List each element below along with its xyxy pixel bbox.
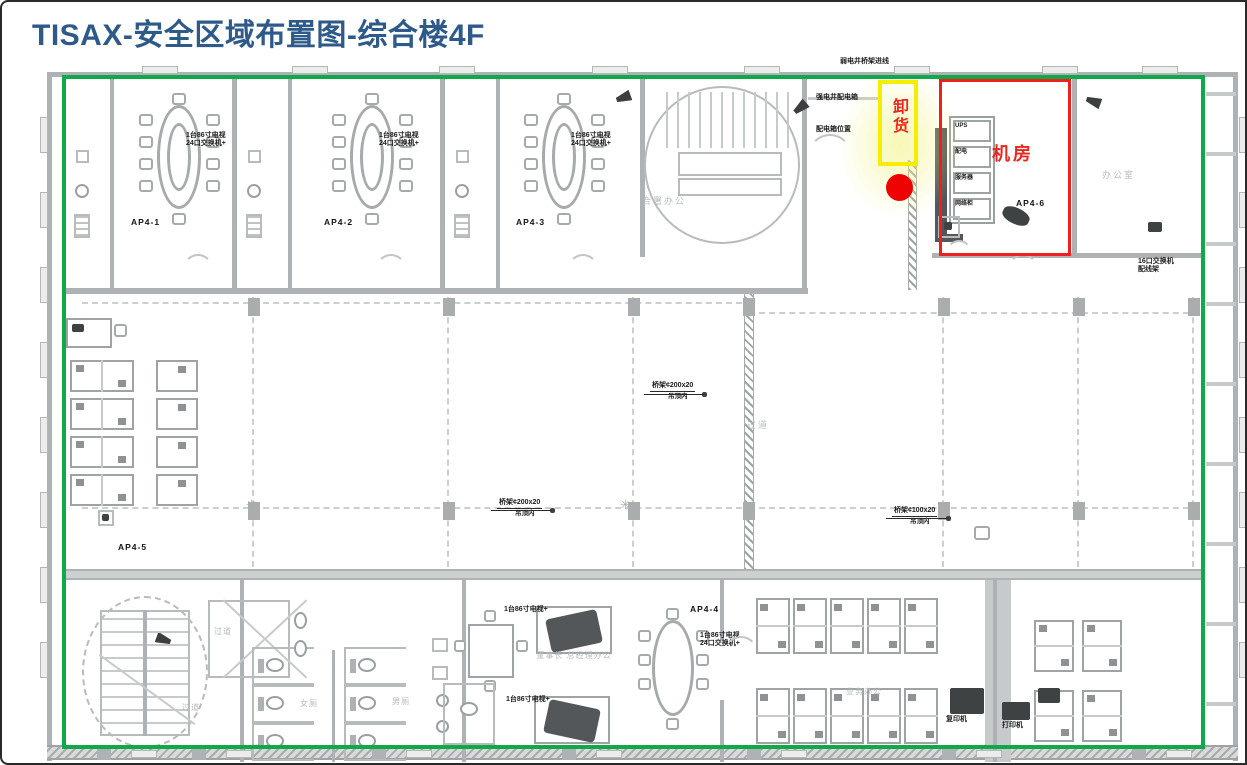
chair [206,158,220,170]
desk-divider [867,625,901,627]
column [1132,747,1146,760]
partition-wall [110,77,114,290]
monitor [926,731,934,738]
window [40,642,48,678]
window [142,66,178,74]
partition-wall [496,77,500,290]
window [1239,117,1247,153]
chair [557,93,571,105]
monitor [178,480,186,487]
monitor [889,641,897,648]
stair-rung [765,92,767,148]
door-arc [376,254,406,284]
stair-shaft-wall [985,580,1011,762]
equipment-label: 复印机 [946,716,967,724]
wall-stub [1206,462,1236,466]
window [744,66,780,74]
leader-annotation-sub: 吊顶内 [910,515,930,525]
window [1239,342,1247,378]
column [1188,502,1200,520]
room-label-exec-office: 董事长 总经理办公 [514,650,634,661]
desk-divider [756,625,790,627]
unloading-label: 卸货 [890,98,906,136]
monitor [178,404,186,411]
leader-annotation-sub: 吊顶内 [515,507,535,517]
monitor [760,604,768,611]
stair-landing [678,152,782,176]
grid-line [82,302,742,304]
grid-line [759,507,1199,509]
ap-label: AP4-1 [131,217,160,227]
sink [432,666,448,680]
desk-divider [830,715,864,717]
wall-stub [1206,242,1236,246]
chair [399,158,413,170]
chair [332,114,346,126]
desk-divider [793,715,827,717]
monitor [118,418,126,425]
desk-unit [156,360,198,392]
monitor [760,694,768,701]
partition-wall [440,77,445,290]
leader-annotation-sub: 吊顶内 [668,390,688,400]
desk-divider [904,625,938,627]
window [781,750,807,758]
chair [524,180,538,192]
chair [638,630,651,642]
partition-wall [720,700,724,762]
window [1166,750,1192,758]
plant-icon: ✳ [620,498,631,511]
window [439,66,475,74]
monitor [76,365,84,372]
monitor [778,731,786,738]
partition-wall [720,580,724,640]
chair [399,180,413,192]
chair [139,180,153,192]
toilet-tank [258,697,264,711]
window [40,267,48,303]
window [1239,492,1247,528]
shaft-fixture [455,184,469,198]
room-label-corridor: 过道 [747,418,769,431]
tv-annotation: 1台86寸电视 24口交换机+ [186,132,226,149]
slide: TISAX-安全区域布置图-综合楼4F 1台86寸电视 24口交换机+AP4-1… [0,0,1247,765]
partition-wall [1072,77,1077,254]
column [1073,298,1085,316]
chair [524,158,538,170]
window [1042,66,1078,74]
shaft-fixture [456,150,469,163]
desk-divider [101,436,103,468]
side-desk [66,318,112,348]
ap-label: AP4-4 [690,604,719,614]
chair [638,654,651,666]
unloading-highlight: 卸货 [878,80,918,166]
monitor [852,641,860,648]
window [226,750,252,758]
stair-rung [688,92,690,148]
door-arc [183,254,213,284]
plant-icon: ✳ [246,498,257,511]
desk-divider [867,715,901,717]
chair [399,114,413,126]
column [628,298,640,316]
wall-stub [1206,542,1236,546]
camera-icon [1085,94,1103,109]
stair-rung [787,92,789,148]
stair-shaft-wall [993,580,997,762]
shaft-fixture [76,150,89,163]
location-marker [886,174,913,201]
leader-line [644,394,704,395]
outer-wall [1233,72,1238,761]
grid-line [759,312,1199,314]
ap-label: AP4-5 [118,542,147,552]
leader-line [491,510,552,511]
desk-unit [156,436,198,468]
monitor [178,442,186,449]
grid-line [1077,297,1079,567]
toilet [358,696,376,710]
ap-label: AP4-3 [516,217,545,227]
window [406,750,432,758]
grid-line [82,507,742,509]
monitor [834,604,842,611]
room-label-office-right: 办公室 [1102,168,1135,181]
monitor [1061,729,1069,736]
desk-divider [1034,645,1074,647]
toilet [266,658,284,672]
chair [454,640,466,652]
chair [666,608,679,620]
chair [172,93,186,105]
chair [206,114,220,126]
shaft-fixture [75,184,89,198]
door-arc [568,254,598,284]
shaft-louver [246,214,262,238]
column [1188,298,1200,316]
monitor [815,731,823,738]
column [97,747,111,760]
stair-rung [710,92,712,148]
chair [696,654,709,666]
desk-divider [1082,715,1122,717]
monitor [178,366,186,373]
server-room-highlight: 机房 [939,79,1071,256]
column [1073,502,1085,520]
stair-rung [754,92,756,148]
chair [591,180,605,192]
chair [666,718,679,730]
monitor [889,731,897,738]
chair [139,136,153,148]
monitor [118,456,126,463]
room-label-joint-office: 合署办公 [642,194,686,207]
monitor [871,604,879,611]
stair-rung [721,92,723,148]
monitor [908,694,916,701]
toilet-tank [258,735,264,749]
column [192,747,206,760]
chair [974,526,990,540]
stair-rung [732,92,734,148]
monitor [72,324,84,332]
monitor [1087,625,1095,632]
conference-table [652,620,694,716]
window [40,117,48,153]
monitor [118,494,126,501]
cad-annotation: 弱电井桥架进线 [840,58,889,66]
window [40,567,48,603]
desk-unit [156,474,198,506]
desk-divider [1034,715,1074,717]
partition-wall [332,650,335,762]
monitor [797,604,805,611]
chair [172,213,186,225]
desk-divider [101,474,103,506]
window [131,750,157,758]
chair [332,136,346,148]
desk-divider [756,715,790,717]
monitor [1109,729,1117,736]
chair [484,610,496,622]
camera-icon [615,90,633,105]
chair [365,93,379,105]
shaft-fixture [248,150,261,163]
toilet [358,658,376,672]
stair-rung [776,92,778,148]
monitor [1061,659,1069,666]
monitor [118,380,126,387]
window [1239,642,1247,678]
room-label-corridor-stair2: 过道 [182,702,200,713]
grid-line [1192,297,1194,567]
chair [638,678,651,690]
toilet-tank [258,659,264,673]
window [976,750,1002,758]
chair [591,158,605,170]
column [443,298,455,316]
column [938,298,950,316]
wall-stub [1206,152,1236,156]
monitor [1039,625,1047,632]
desk-divider [101,398,103,430]
door-arc [1008,254,1038,284]
ap-label: AP4-2 [324,217,353,227]
chair [332,158,346,170]
partition-wall [232,77,237,290]
chair [139,114,153,126]
urinal [294,612,307,629]
monitor [815,641,823,648]
stair-rung [677,92,679,148]
tv-annotation: 1台86寸电视 24口交换机+ [379,132,419,149]
window [1239,417,1247,453]
chair [206,180,220,192]
chair [591,114,605,126]
monitor [778,641,786,648]
equipment-label: 打印机 [1002,722,1023,730]
window [40,492,48,528]
wall-stub [1206,92,1236,96]
toilet-tank [350,659,356,673]
printer-icon [1002,702,1030,720]
wall-stub [1206,302,1236,306]
copier-icon [950,688,984,714]
toilet [358,734,376,748]
stair-rung [666,92,668,148]
monitor [76,479,84,486]
window [1239,267,1247,303]
column [747,747,761,760]
monitor [834,694,842,701]
monitor [852,731,860,738]
window [592,66,628,74]
room-label-open-office: 业务办公 [846,686,882,697]
toilet-tank [350,735,356,749]
monitor [926,641,934,648]
tv-annotation: 1台86寸电视 24口交换机+ [571,132,611,149]
partition-wall [288,77,292,290]
monitor [76,403,84,410]
toilet [266,734,284,748]
leader-line [886,518,948,519]
urinal [294,640,307,657]
right-note: 16口交换机 配线架 [1138,258,1174,275]
window [1239,192,1247,228]
chair [557,213,571,225]
grid-line [252,297,254,567]
wall-stub [1206,702,1236,706]
room-label-toilet-male: 男厕 [392,696,410,707]
chair [365,213,379,225]
column [743,298,755,316]
chair [114,324,127,337]
stair-landing [678,178,782,196]
wall-stub [1206,622,1236,626]
window [292,66,328,74]
wall-stub [1206,382,1236,386]
desk-divider [101,360,103,392]
window [40,417,48,453]
tv-icon [1148,222,1162,232]
chair [332,180,346,192]
grid-line [447,297,449,567]
corridor-wall-top [64,288,808,294]
stair-rung [699,92,701,148]
chair [139,158,153,170]
desk-divider [793,625,827,627]
column [443,502,455,520]
column [248,298,260,316]
monitor [1087,695,1095,702]
stair-rung [743,92,745,148]
floor-box-dot [102,514,109,521]
grid-line [942,297,944,567]
window [40,192,48,228]
cad-annotation: 1台86寸电视+ [506,696,550,704]
server-room-label: 机房 [992,140,1034,166]
chair [696,678,709,690]
desk-unit [156,398,198,430]
shaft-louver [74,214,90,238]
column [562,747,576,760]
shaft-louver [454,214,470,238]
column [942,747,956,760]
toilet [460,702,478,716]
room-label-corridor-stair: 过道 [214,626,232,637]
desk-divider [830,625,864,627]
window [40,342,48,378]
cad-annotation: 1台86寸电视+ [504,606,548,614]
grid-line [632,297,634,567]
window [596,750,622,758]
shaft-fixture [247,184,261,198]
hatched-wall-center [744,294,754,570]
meeting-table [468,624,514,678]
door-arc [724,636,758,670]
desk-divider [904,715,938,717]
chair [524,114,538,126]
window [1142,66,1178,74]
sink [432,638,448,652]
chair [524,136,538,148]
printer-icon [1038,688,1060,703]
monitor [908,604,916,611]
toilet [266,696,284,710]
corridor-wall-bottom [64,569,1204,580]
monitor [797,694,805,701]
monitor [1109,659,1117,666]
desk-divider [1082,645,1122,647]
monitor [76,441,84,448]
toilet-tank [350,697,356,711]
stair-rail [143,610,147,736]
room-label-toilet-female: 女厕 [300,698,318,709]
window [1239,567,1247,603]
column [743,502,755,520]
